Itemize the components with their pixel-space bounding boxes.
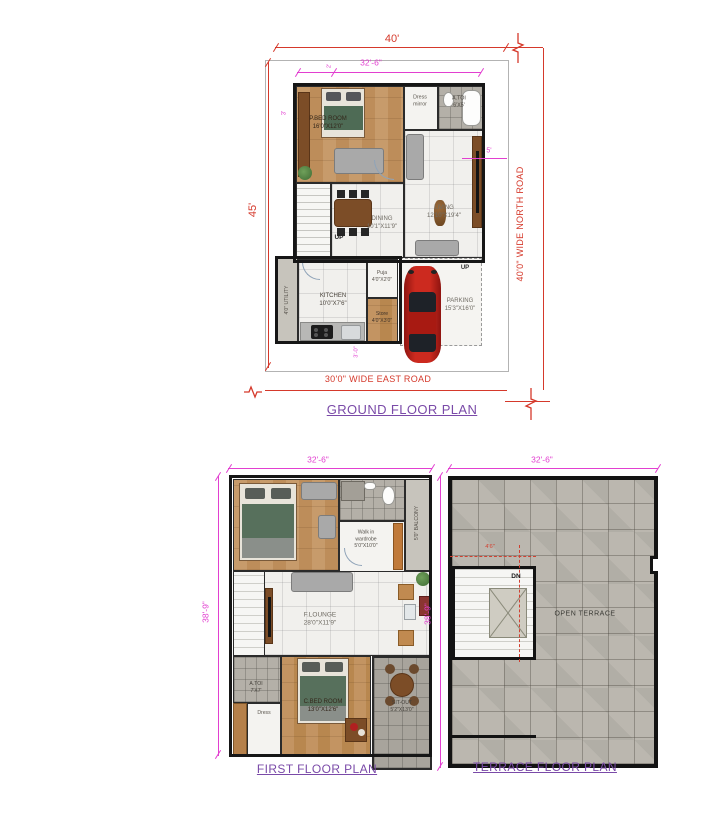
dim-text: 32'-6" bbox=[360, 57, 382, 68]
dim-width: 32'-6" bbox=[531, 454, 553, 465]
ground-floor-plan: 40' 45' 32'-6" 2' 3' 5' 3'-0" 30'0" WIDE… bbox=[0, 0, 709, 440]
room-size: 5'0"X10'0" bbox=[354, 543, 377, 550]
dimension-line bbox=[228, 468, 432, 469]
blanket bbox=[242, 538, 294, 558]
room-toilet2 bbox=[233, 656, 281, 703]
room-name: Walk in bbox=[354, 530, 377, 537]
dimension-line bbox=[297, 72, 481, 73]
label-utility: 4'0" UTILITY bbox=[285, 286, 292, 315]
car bbox=[404, 266, 441, 363]
label-wardrobe: Walk in wardrobe 5'0"X10'0" bbox=[354, 530, 377, 550]
wardrobe-shelf bbox=[393, 523, 403, 570]
label-kitchen: KITCHEN 10'0"X7'6" bbox=[319, 293, 346, 309]
room-name: 5'0" BALCONY bbox=[415, 506, 422, 540]
break-mark-icon bbox=[511, 33, 525, 63]
room-size: 6'X5' bbox=[452, 103, 466, 110]
dim-text: 4'6" bbox=[485, 544, 495, 552]
round-table bbox=[390, 673, 414, 697]
label-dn: DN bbox=[511, 573, 520, 581]
flowers bbox=[350, 723, 358, 731]
armchair bbox=[318, 515, 336, 539]
dim-width: 32'-6" bbox=[307, 454, 329, 465]
dim-text: 5' bbox=[486, 146, 491, 155]
dim-rear-setback: 3'-0" bbox=[353, 346, 360, 357]
label-living: LIVING 12'10"X19'4" bbox=[427, 205, 461, 221]
dimension-line bbox=[268, 62, 269, 368]
room-name: SIT-OUT bbox=[390, 700, 413, 707]
wardrobe bbox=[298, 92, 310, 177]
burner bbox=[324, 333, 328, 337]
plant bbox=[298, 166, 312, 180]
break-mark-icon bbox=[524, 388, 538, 420]
area-text: OPEN TERRACE bbox=[554, 609, 615, 618]
dining-chair bbox=[349, 190, 357, 198]
tick-mark bbox=[655, 464, 661, 473]
room-name: A.TOI bbox=[452, 96, 466, 103]
label-master-bedroom: P.BED ROOM 16'0"X12'0" bbox=[309, 116, 347, 132]
room-size: mirror bbox=[413, 102, 427, 109]
room-name: Dress bbox=[257, 711, 270, 718]
pillow bbox=[245, 488, 265, 499]
reference-dash bbox=[519, 545, 520, 662]
floor-plan-sheet: 40' 45' 32'-6" 2' 3' 5' 3'-0" 30'0" WIDE… bbox=[0, 0, 709, 834]
dining-chair bbox=[361, 190, 369, 198]
label-open-terrace: OPEN TERRACE bbox=[554, 609, 615, 618]
road-east-label: 30'0" WIDE EAST ROAD bbox=[325, 374, 431, 386]
dim-stair: 4'6" bbox=[485, 544, 495, 552]
room-name: KITCHEN bbox=[319, 293, 346, 301]
dim-text: 3' bbox=[280, 111, 288, 116]
side-table bbox=[404, 604, 416, 620]
pillow bbox=[271, 488, 291, 499]
room-size: 28'0"X11'9" bbox=[304, 620, 337, 628]
break-mark-icon bbox=[244, 385, 262, 399]
dim-text: 2' bbox=[326, 64, 333, 68]
sink bbox=[341, 325, 361, 340]
car-roof bbox=[409, 312, 436, 334]
label-dining: DINING 10'1"X11'9" bbox=[367, 216, 397, 232]
label-toilet: A.TOI 6'X5' bbox=[452, 96, 466, 110]
room-size: 5'2"X13'0" bbox=[390, 707, 413, 714]
burner bbox=[314, 328, 318, 332]
reference-dash bbox=[450, 556, 536, 557]
stove bbox=[311, 325, 333, 339]
chair bbox=[409, 664, 419, 674]
dim-top-setback: 2' bbox=[326, 64, 333, 68]
road-north-label: 40'0" WIDE NORTH ROAD bbox=[515, 166, 527, 281]
staircase bbox=[233, 571, 265, 656]
dim-right-setback: 5' bbox=[486, 146, 491, 155]
bed bbox=[239, 483, 297, 561]
room-size: 4'0"X3'0" bbox=[372, 318, 392, 325]
room-name: P.BED ROOM bbox=[309, 116, 347, 124]
room-name: C.BED ROOM bbox=[304, 699, 343, 707]
label-up-stairs: UP bbox=[334, 234, 343, 242]
room-size: 4'0"X2'0" bbox=[372, 277, 392, 284]
plant bbox=[416, 572, 430, 586]
title-text: TERRACE FLOOR PLAN bbox=[473, 760, 617, 774]
label-store: Store 4'0"X3'0" bbox=[372, 311, 392, 324]
pillow bbox=[302, 662, 320, 672]
room-name: wardrobe bbox=[354, 537, 377, 544]
room-size: 16'0"X12'0" bbox=[309, 124, 347, 132]
room-name: A.TOI bbox=[249, 681, 262, 688]
road-line-east bbox=[265, 390, 507, 391]
room-size: 12'10"X19'4" bbox=[427, 213, 461, 221]
label-dress: Dress mirror bbox=[413, 95, 427, 109]
dining-chair bbox=[349, 228, 357, 236]
road-text: 40'0" WIDE NORTH ROAD bbox=[515, 166, 527, 281]
dimension-line bbox=[275, 47, 507, 48]
dimension-line bbox=[448, 468, 658, 469]
slab-step-line bbox=[448, 735, 536, 738]
label-puja: Puja 4'0"X2'0" bbox=[372, 270, 392, 283]
blanket bbox=[242, 504, 294, 538]
first-floor-title: FIRST FLOOR PLAN bbox=[257, 762, 377, 776]
dim-text: 32'-6" bbox=[531, 454, 553, 465]
road-line-north bbox=[543, 48, 544, 390]
tv-screen bbox=[268, 597, 271, 637]
pillow bbox=[325, 662, 343, 672]
dim-depth: 38'-9" bbox=[200, 601, 211, 623]
dim-text: 3'-0" bbox=[353, 346, 360, 357]
slab-notch bbox=[650, 556, 658, 574]
room-name: 4'0" UTILITY bbox=[285, 286, 292, 315]
room-name: F.LOUNGE bbox=[304, 612, 337, 620]
dimension-line bbox=[440, 476, 441, 768]
tv-unit bbox=[265, 588, 273, 644]
room-name: LIVING bbox=[427, 205, 461, 213]
room-size: 15'3"X16'0" bbox=[445, 306, 476, 314]
headlight bbox=[408, 270, 414, 274]
stair-text: DN bbox=[511, 573, 520, 581]
road-text: 30'0" WIDE EAST ROAD bbox=[325, 374, 431, 386]
room-size: 10'1"X11'9" bbox=[367, 224, 397, 232]
sofa bbox=[406, 134, 424, 180]
wardrobe-shelf bbox=[233, 703, 247, 756]
pillow bbox=[326, 92, 341, 101]
sofa bbox=[301, 482, 337, 500]
landing-cross-icon bbox=[490, 589, 526, 637]
burner bbox=[314, 333, 318, 337]
dim-plot-depth: 45' bbox=[246, 203, 260, 217]
label-toilet2: A.TOI 7'X7' bbox=[249, 681, 262, 694]
stair-text: UP bbox=[334, 234, 343, 242]
dim-text: 45' bbox=[246, 203, 260, 217]
label-up-entry: UP bbox=[461, 265, 469, 273]
dim-plot-width: 40' bbox=[385, 32, 399, 46]
toilet-seat bbox=[382, 486, 395, 505]
room-size: 13'0"X12'6" bbox=[304, 707, 343, 715]
rear-window bbox=[409, 334, 436, 352]
label-dress2: Dress bbox=[257, 711, 270, 718]
label-balcony: 5'0" BALCONY bbox=[415, 506, 422, 540]
label-parking: PARKING 15'3"X16'0" bbox=[445, 298, 476, 314]
flower-stand bbox=[345, 718, 367, 742]
sofa bbox=[415, 240, 459, 256]
tv-screen bbox=[476, 151, 479, 213]
dining-chair bbox=[337, 190, 345, 198]
dim-left-setback: 3' bbox=[280, 111, 288, 116]
dim-text: 40' bbox=[385, 32, 399, 46]
room-name: Puja bbox=[372, 270, 392, 277]
headlight bbox=[431, 270, 437, 274]
dim-text: 38'-9" bbox=[422, 603, 433, 625]
label-sitout: SIT-OUT 5'2"X13'0" bbox=[390, 700, 413, 713]
terrace-floor-title: TERRACE FLOOR PLAN bbox=[473, 760, 617, 774]
dim-text: 38'-9" bbox=[200, 601, 211, 623]
stair-text: UP bbox=[461, 265, 469, 273]
title-text: GROUND FLOOR PLAN bbox=[327, 402, 478, 417]
pillow bbox=[346, 92, 361, 101]
dimension-line bbox=[218, 476, 219, 756]
tv-unit bbox=[472, 136, 482, 228]
windshield bbox=[409, 292, 436, 312]
chair bbox=[385, 664, 395, 674]
room-name: Dress bbox=[413, 95, 427, 102]
dim-depth: 38'-9" bbox=[422, 603, 433, 625]
chair bbox=[398, 584, 414, 600]
room-size: 10'0"X7'6" bbox=[319, 301, 346, 309]
label-lounge: F.LOUNGE 28'0"X11'9" bbox=[304, 612, 337, 629]
tick-mark bbox=[437, 762, 443, 771]
room-size: 7'X7' bbox=[249, 688, 262, 695]
dimension-line bbox=[462, 158, 507, 159]
dim-text: 32'-6" bbox=[307, 454, 329, 465]
kitchen-counter bbox=[300, 322, 365, 341]
chair bbox=[398, 630, 414, 646]
stair-landing bbox=[489, 588, 527, 638]
flowers bbox=[358, 729, 365, 736]
ground-floor-title: GROUND FLOOR PLAN bbox=[327, 402, 478, 417]
washbasin bbox=[364, 482, 376, 490]
staircase bbox=[296, 183, 331, 259]
room-name: DINING bbox=[367, 216, 397, 224]
room-name: PARKING bbox=[445, 298, 476, 306]
dim-building-width: 32'-6" bbox=[360, 57, 382, 68]
sofa bbox=[291, 572, 353, 592]
label-child-bedroom: C.BED ROOM 13'0"X12'6" bbox=[304, 699, 343, 715]
burner bbox=[324, 328, 328, 332]
title-text: FIRST FLOOR PLAN bbox=[257, 762, 377, 776]
shower bbox=[341, 481, 365, 501]
